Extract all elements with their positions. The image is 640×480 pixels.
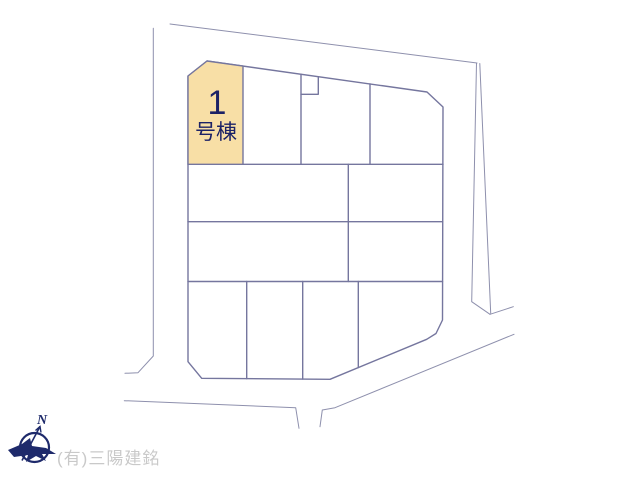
bottom-road-right-edge [320,334,514,426]
left-road-edge [125,28,153,373]
site-plan-canvas: 1 号棟 N (有)三陽建銘 [0,0,640,480]
top-row-notch [301,77,318,95]
lot-1-suffix: 号棟 [195,121,237,144]
top-road-boundary [170,24,477,63]
right-boundary-inner [472,63,490,314]
company-watermark: (有)三陽建銘 [57,449,160,468]
site-plan: 1 号棟 N (有)三陽建銘 [0,0,640,480]
bottom-road-left-edge [124,401,299,429]
compass-icon: N [8,413,56,462]
lot-1: 1 号棟 [188,61,243,164]
road-lines [124,24,514,428]
lot-1-number: 1 [208,84,227,122]
right-boundary-outer [480,64,491,314]
road-exit-upper-edge [490,307,513,315]
compass-north-label: N [36,413,48,428]
